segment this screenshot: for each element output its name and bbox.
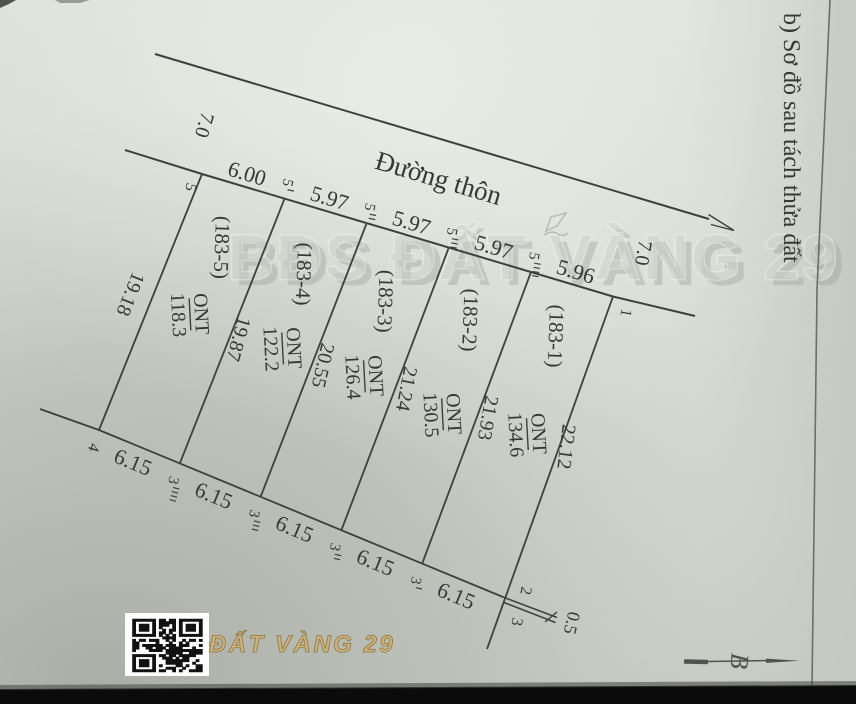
svg-text:b) Sơ đồ sau tách thửa đất: b) Sơ đồ sau tách thửa đất [778, 13, 804, 263]
svg-text:(183-2): (183-2) [457, 288, 483, 352]
svg-text:ONT: ONT [526, 412, 550, 454]
svg-text:(183-5): (183-5) [209, 216, 235, 280]
svg-text:126.4: 126.4 [340, 354, 364, 400]
svg-text:130.5: 130.5 [418, 392, 442, 438]
svg-text:(183-1): (183-1) [543, 304, 569, 368]
svg-text:B: B [724, 652, 754, 670]
svg-text:(183-3): (183-3) [372, 269, 398, 333]
svg-text:ONT: ONT [189, 293, 213, 335]
svg-text:ONT: ONT [363, 355, 387, 397]
svg-text:118.3: 118.3 [166, 292, 190, 337]
svg-text:ONT: ONT [282, 327, 306, 369]
svg-text:ONT: ONT [441, 393, 465, 435]
svg-text:122.2: 122.2 [258, 326, 282, 372]
svg-text:ĐẤT VÀNG 29: ĐẤT VÀNG 29 [209, 630, 395, 658]
svg-text:(183-4): (183-4) [291, 242, 317, 306]
svg-text:7.0: 7.0 [630, 239, 656, 267]
svg-text:134.6: 134.6 [503, 412, 527, 458]
